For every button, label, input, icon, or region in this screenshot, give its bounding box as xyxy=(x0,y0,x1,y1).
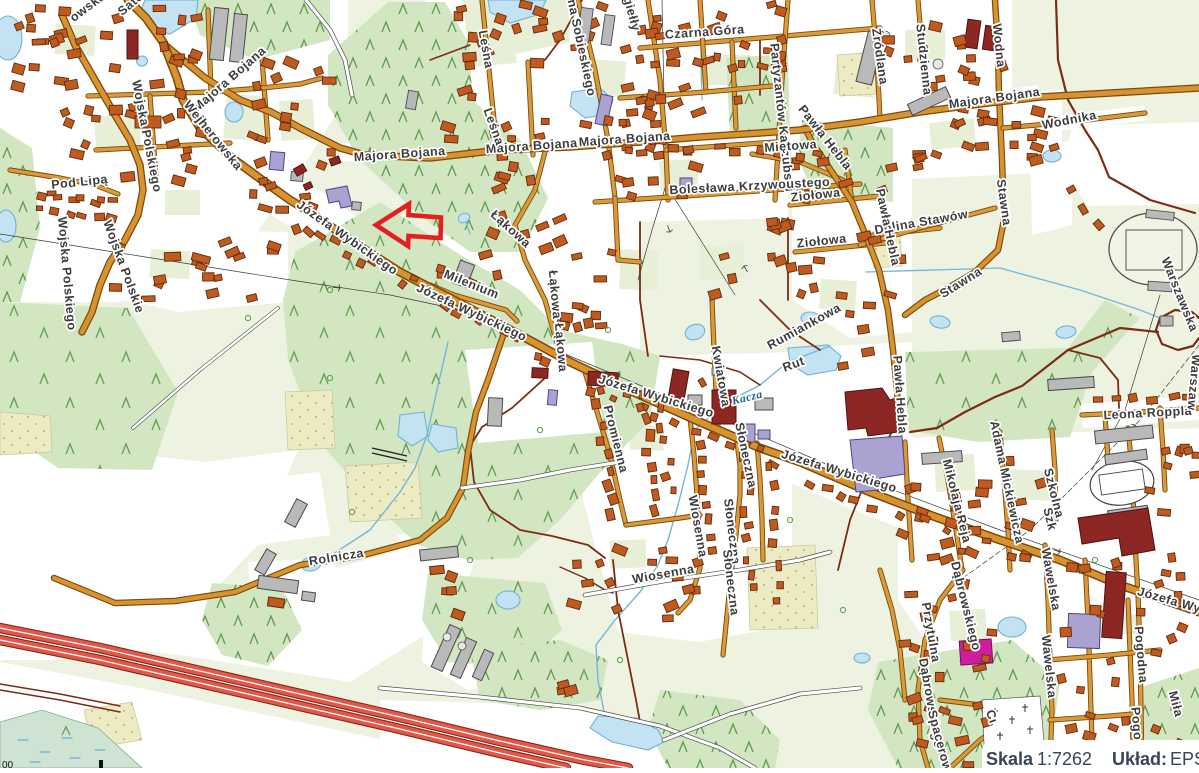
svg-text:EPS: EPS xyxy=(1170,749,1199,768)
svg-text:Układ:: Układ: xyxy=(1112,749,1167,768)
svg-text:1:7262: 1:7262 xyxy=(1037,749,1092,768)
svg-text:00: 00 xyxy=(2,760,14,768)
svg-text:Skala: Skala xyxy=(986,749,1034,768)
